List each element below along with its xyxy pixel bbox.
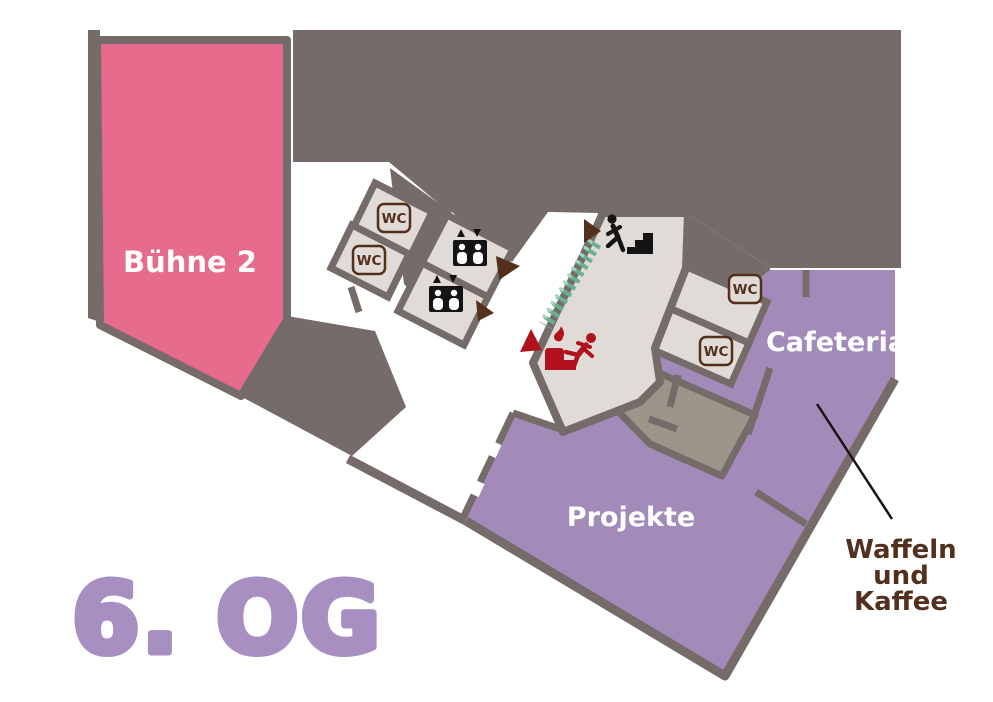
wc-icon: WC [700, 337, 732, 365]
wc-icon: WC [353, 246, 385, 274]
wc-label: WC [704, 344, 729, 360]
wc-label: WC [382, 211, 407, 227]
floor-plan-svg: WC WC WC WC Bühne 2 Cafeteria Projekte W… [0, 0, 993, 702]
wc-label: WC [733, 282, 758, 298]
door-gap [474, 482, 480, 495]
wc-label: WC [357, 253, 382, 269]
annotation-text: Kaffee [854, 587, 948, 617]
wc-icon: WC [378, 204, 410, 232]
wc-icon: WC [729, 275, 761, 303]
door-gap [491, 443, 497, 456]
room-label-projekte: Projekte [567, 502, 695, 533]
floor-title: 6. OG [72, 562, 382, 675]
room-label-cafeteria: Cafeteria [766, 327, 906, 358]
room-label-buehne2: Bühne 2 [123, 245, 257, 279]
